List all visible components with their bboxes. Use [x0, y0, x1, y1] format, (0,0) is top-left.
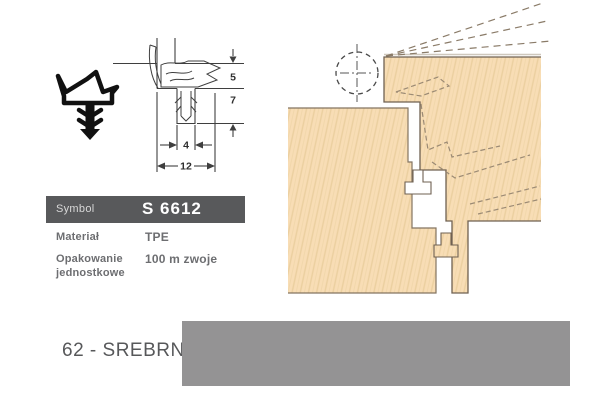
opening-projection-lines	[386, 3, 551, 56]
seal-profile-icon	[58, 72, 117, 140]
material-label: Materiał	[56, 231, 99, 243]
installation-illustration	[288, 3, 551, 293]
material-value: TPE	[145, 230, 169, 244]
dimension-5-7	[197, 49, 244, 137]
catalog-page: 5 7 4 12	[0, 0, 600, 400]
color-variant-label: 62 - SREBRNY	[62, 340, 198, 362]
seal-section-outline	[149, 45, 220, 121]
wood-frame-section	[288, 108, 436, 293]
packaging-value: 100 m zwoje	[145, 252, 217, 266]
hinge-axis-icon	[336, 44, 378, 102]
dimension-drawing: 5 7 4 12	[113, 38, 244, 173]
spec-header-row: Symbol S 6612	[46, 196, 245, 223]
packaging-label: Opakowanie jednostkowe	[56, 252, 125, 280]
dimension-label-5: 5	[230, 72, 236, 84]
dimension-label-7: 7	[230, 95, 236, 107]
dimension-label-4: 4	[183, 140, 189, 152]
dimension-label-12: 12	[180, 161, 192, 173]
symbol-value: S 6612	[142, 199, 202, 219]
spec-table: Symbol S 6612 Materiał TPE Opakowanie je…	[46, 196, 245, 288]
symbol-label: Symbol	[56, 203, 94, 215]
groove-slot	[177, 89, 195, 124]
anchor-tip	[80, 129, 100, 140]
color-swatch-silver	[182, 321, 570, 386]
